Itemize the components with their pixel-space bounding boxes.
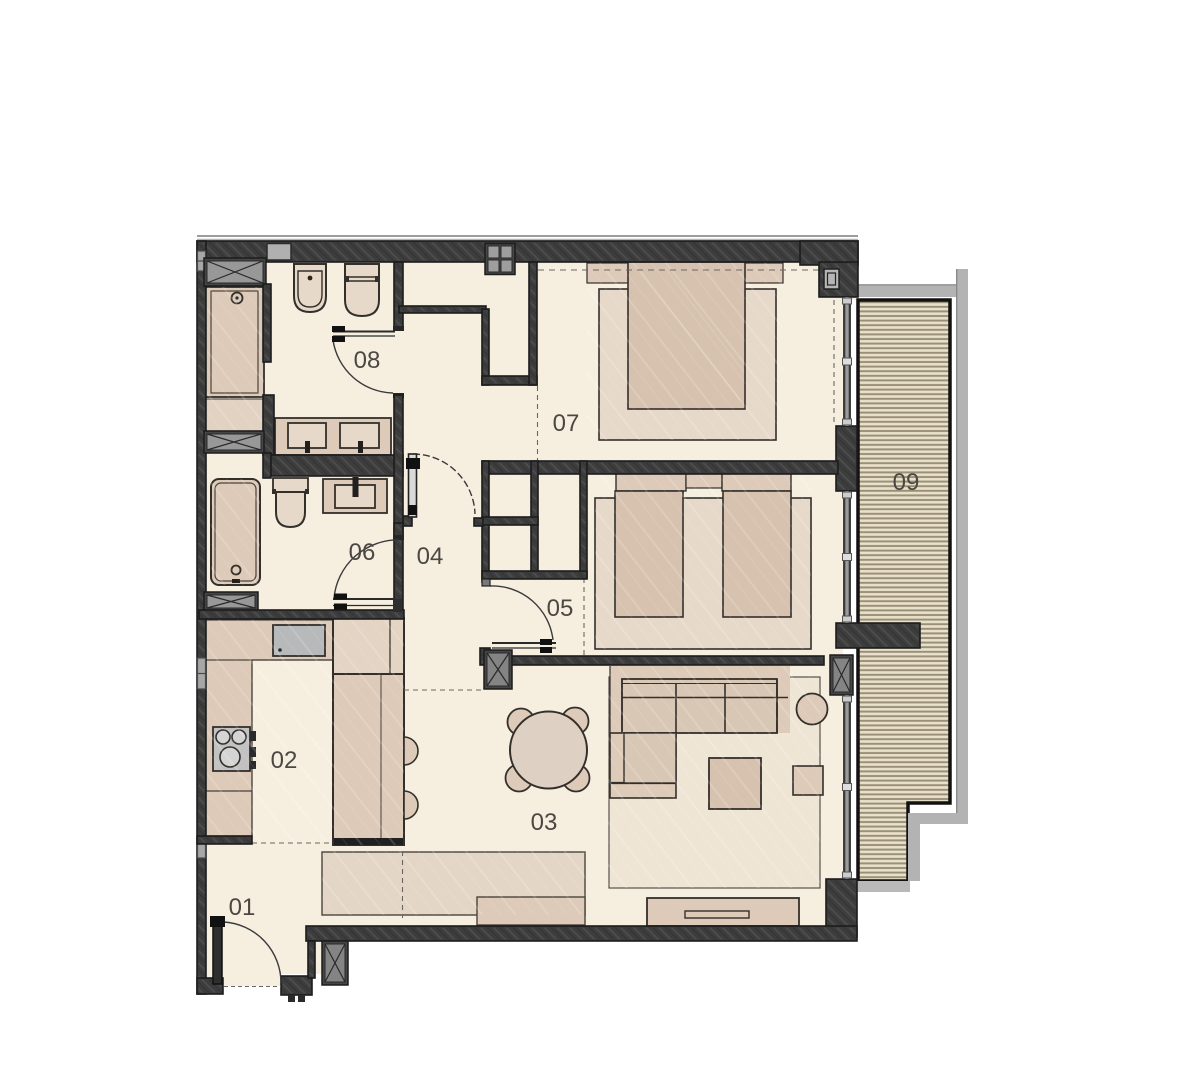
svg-text:03: 03 [531,809,558,836]
svg-text:05: 05 [547,595,574,622]
svg-text:04: 04 [417,543,444,570]
svg-text:02: 02 [271,747,298,774]
svg-text:07: 07 [553,410,580,437]
svg-text:01: 01 [229,894,256,921]
svg-text:06: 06 [349,539,376,566]
svg-text:08: 08 [354,347,381,374]
svg-text:09: 09 [893,469,920,496]
